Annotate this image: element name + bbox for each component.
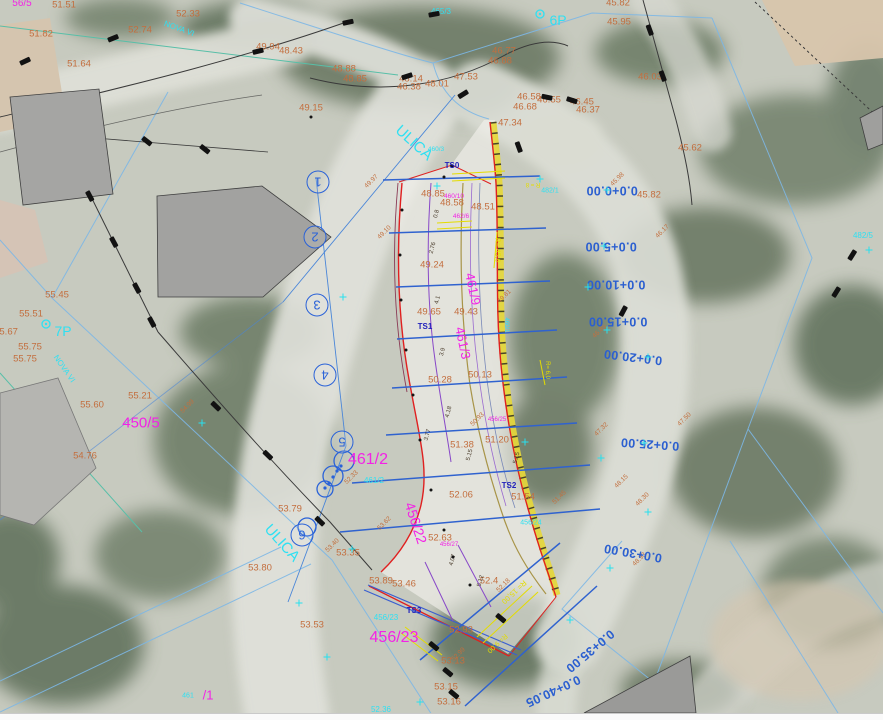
window-bottom-edge (0, 713, 883, 720)
cad-map-viewport[interactable]: ULICAULICANOVA VINOVA VI7P6P465/3482/548… (0, 0, 883, 720)
aerial-basemap (0, 0, 883, 713)
